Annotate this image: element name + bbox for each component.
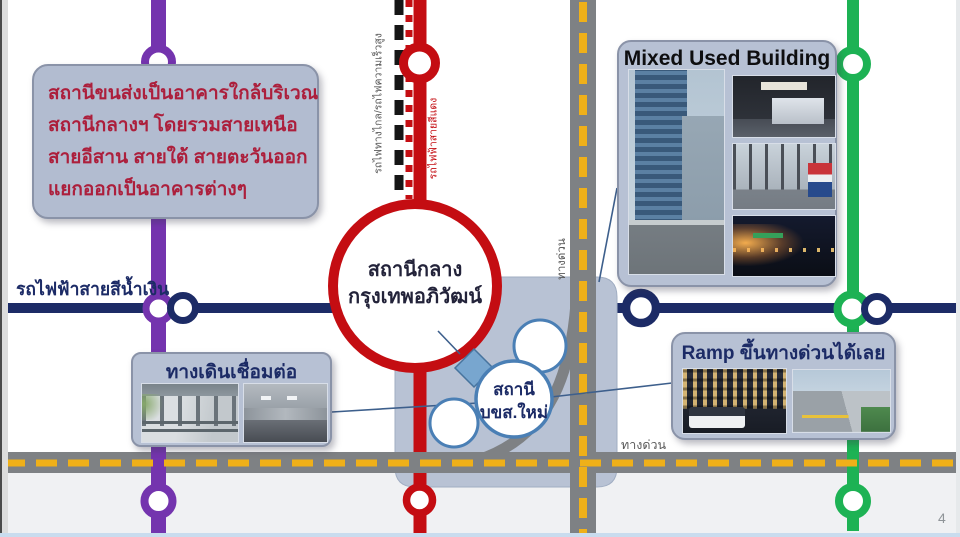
walkway-callout: ทางเดินเชื่อมต่อ — [131, 352, 332, 447]
green-line-station-top — [839, 50, 867, 78]
page-number: 4 — [938, 510, 946, 526]
frame-right — [956, 0, 960, 537]
central-station-line2: กรุงเทพอภิวัฒน์ — [315, 284, 515, 311]
blue-line-label: รถไฟฟ้าสายสีน้ำเงิน — [16, 275, 169, 303]
ramp-callout: Ramp ขึ้นทางด่วนได้เลย — [671, 332, 896, 440]
expressway-horizontal-label: ทางด่วน — [621, 435, 666, 455]
photo-night-bus — [682, 368, 787, 434]
photo-expressway-ramp — [792, 369, 891, 433]
central-station-label: สถานีกลาง กรุงเทพอภิวัฒน์ — [315, 257, 515, 311]
bus-terminal-label: สถานี บขส.ใหม่ — [454, 378, 574, 424]
annotation-line-1: สถานีขนส่งเป็นอาคารใกล้บริเวณ — [48, 78, 303, 110]
frame-left-light — [2, 0, 8, 537]
annotation-line-3: สายอีสาน สายใต้ สายตะวันออก — [48, 142, 303, 174]
photo-night-street — [732, 215, 836, 277]
blue-line-station-right — [865, 297, 890, 322]
expressway-vertical-label: ทางด่วน — [553, 229, 571, 289]
photo-terminal-hall — [732, 75, 836, 138]
red-line-station-top — [404, 47, 436, 79]
mixed-use-callout: Mixed Used Building — [617, 40, 837, 287]
slide-transit-diagram: รถไฟทางไกล/รถไฟความเร็วสูง รถไฟฟ้าสายสีแ… — [0, 0, 960, 537]
annotation-box: สถานีขนส่งเป็นอาคารใกล้บริเวณ สถานีกลางฯ… — [32, 64, 319, 219]
purple-line-station-bottom — [145, 487, 173, 515]
photo-tunnel — [243, 383, 328, 443]
connector-mixed-use — [599, 188, 617, 282]
blue-line-station-left — [171, 296, 196, 321]
red-line-label: รถไฟฟ้าสายสีแดง — [425, 79, 442, 199]
annotation-line-2: สถานีกลางฯ โดยรวมสายเหนือ — [48, 110, 303, 142]
ramp-title: Ramp ขึ้นทางด่วนได้เลย — [673, 338, 894, 368]
photo-entrance — [732, 143, 836, 210]
mixed-use-title: Mixed Used Building — [619, 47, 835, 71]
bus-shape — [689, 407, 745, 428]
blue-line-station-center — [626, 293, 656, 323]
photo-skyscraper — [628, 69, 725, 275]
green-line-station-bottom — [839, 487, 867, 515]
red-line-station-bottom — [407, 487, 433, 513]
central-station-line1: สถานีกลาง — [315, 257, 515, 284]
bus-terminal-line1: สถานี — [454, 378, 574, 401]
frame-bottom — [0, 533, 960, 537]
photo-skywalk — [141, 383, 239, 443]
annotation-line-4: แยกออกเป็นอาคารต่างๆ — [48, 174, 303, 206]
bus-terminal-line2: บขส.ใหม่ — [454, 401, 574, 424]
intercity-rail-label: รถไฟทางไกล/รถไฟความเร็วสูง — [370, 14, 387, 194]
